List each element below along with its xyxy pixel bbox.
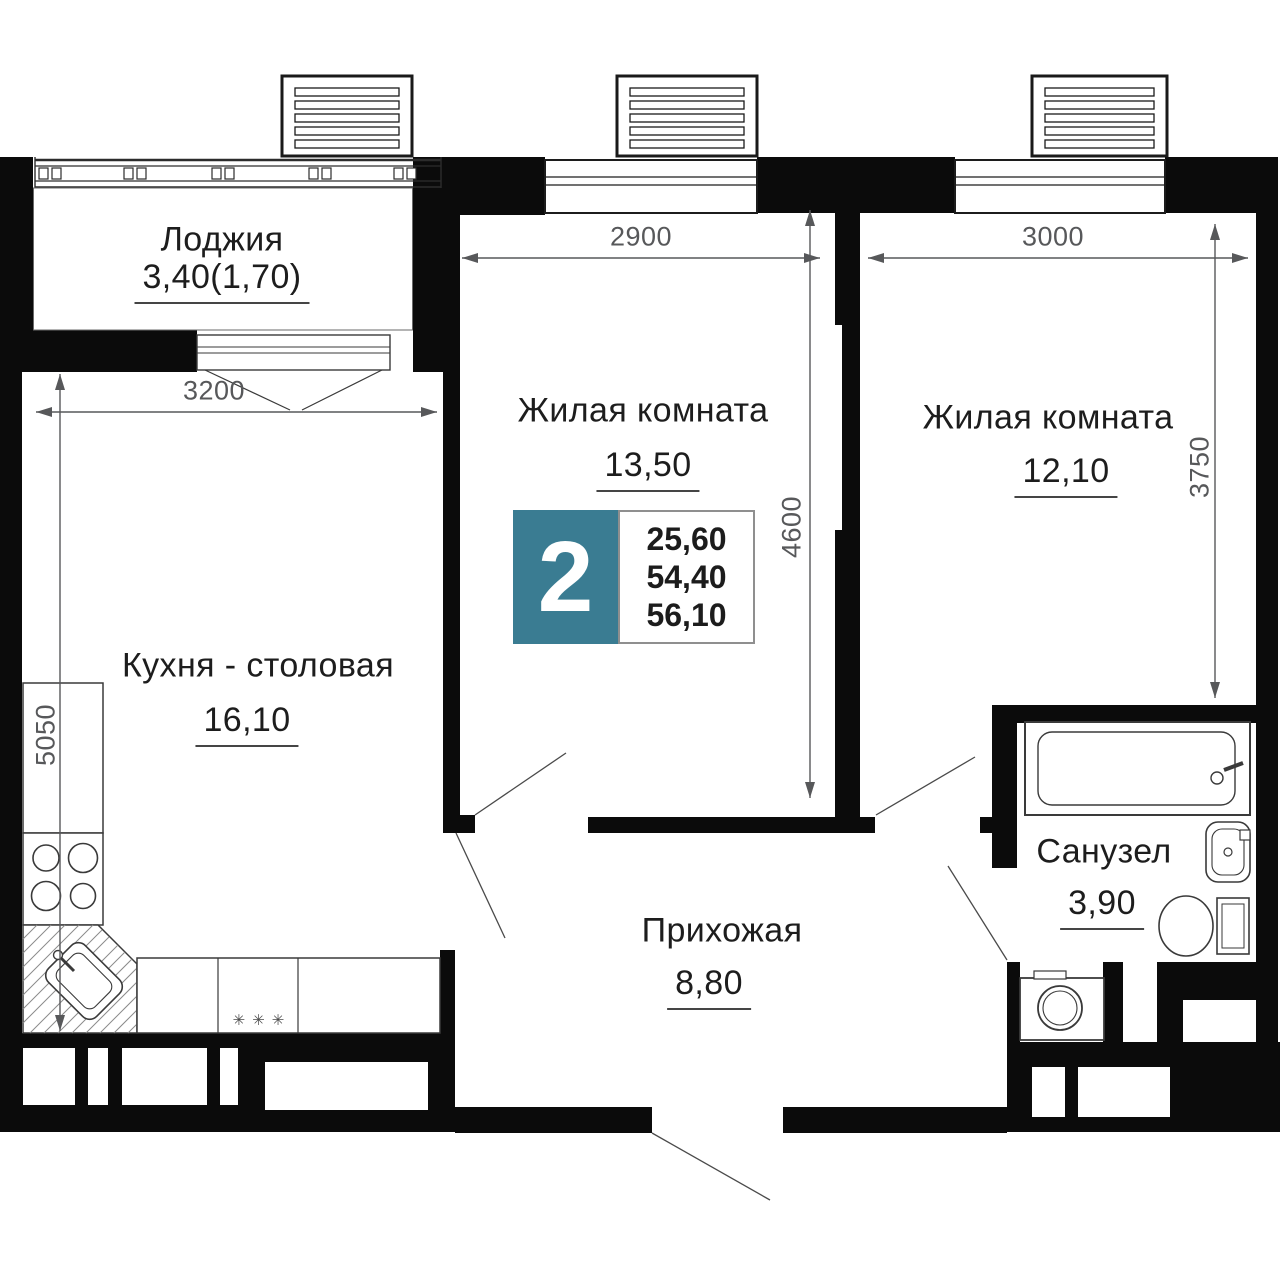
dim-living2-width xyxy=(868,253,1248,263)
stove xyxy=(23,833,103,925)
badge-area-values: 25,60 54,40 56,10 xyxy=(618,510,755,644)
badge-rooms-count: 2 xyxy=(513,510,618,644)
washing-machine xyxy=(1020,971,1104,1040)
room-label-hall: Прихожая xyxy=(642,912,803,951)
window-living1 xyxy=(545,160,757,213)
door-swing-entrance xyxy=(652,1133,770,1200)
toilet xyxy=(1159,896,1249,956)
dim-text-living2-depth: 3750 xyxy=(1185,436,1216,498)
apartment-badge: 2 25,60 54,40 56,10 xyxy=(513,510,755,644)
corner-sink xyxy=(23,925,137,1033)
bathtub xyxy=(1025,722,1250,815)
room-label-living2: Жилая комната xyxy=(923,399,1174,438)
counter-marks: ✳✳✳ xyxy=(233,1011,292,1029)
room-label-bath: Санузел xyxy=(1036,833,1171,872)
dim-living1-width xyxy=(462,253,820,263)
door-swing-bath xyxy=(948,866,1007,960)
dim-text-living1-depth: 4600 xyxy=(777,496,808,558)
bathroom-sink xyxy=(1206,822,1250,882)
ac-unit-3 xyxy=(1032,76,1167,156)
door-swing-living1 xyxy=(475,753,566,815)
loggia-glazing xyxy=(35,157,441,188)
room-area-kitchen: 16,10 xyxy=(195,701,298,747)
door-swing-living2 xyxy=(876,757,975,815)
dim-text-kitchen-width: 3200 xyxy=(183,376,245,407)
room-area-hall: 8,80 xyxy=(667,964,751,1010)
ac-unit-1 xyxy=(282,76,412,156)
dim-text-kitchen-depth: 5050 xyxy=(31,704,62,766)
room-area-living1: 13,50 xyxy=(596,446,699,492)
dim-text-living1-width: 2900 xyxy=(610,222,672,253)
ac-unit-2 xyxy=(617,76,757,156)
door-swing-kitchen xyxy=(456,833,505,938)
room-area-living2: 12,10 xyxy=(1014,452,1117,498)
badge-area-living: 25,60 xyxy=(646,520,726,558)
badge-area-total: 56,10 xyxy=(646,596,726,634)
room-label-living1: Жилая комната xyxy=(518,392,769,431)
dim-kitchen-width xyxy=(36,407,437,417)
dim-text-living2-width: 3000 xyxy=(1022,222,1084,253)
badge-area-main: 54,40 xyxy=(646,558,726,596)
room-label-loggia: Лоджия xyxy=(161,221,284,260)
room-area-bath: 3,90 xyxy=(1060,884,1144,930)
floor-plan: Лоджия 3,40(1,70) Жилая комната 13,50 Жи… xyxy=(0,0,1280,1280)
room-label-kitchen: Кухня - столовая xyxy=(122,647,394,686)
room-area-loggia: 3,40(1,70) xyxy=(135,258,310,304)
window-living2 xyxy=(955,160,1165,213)
